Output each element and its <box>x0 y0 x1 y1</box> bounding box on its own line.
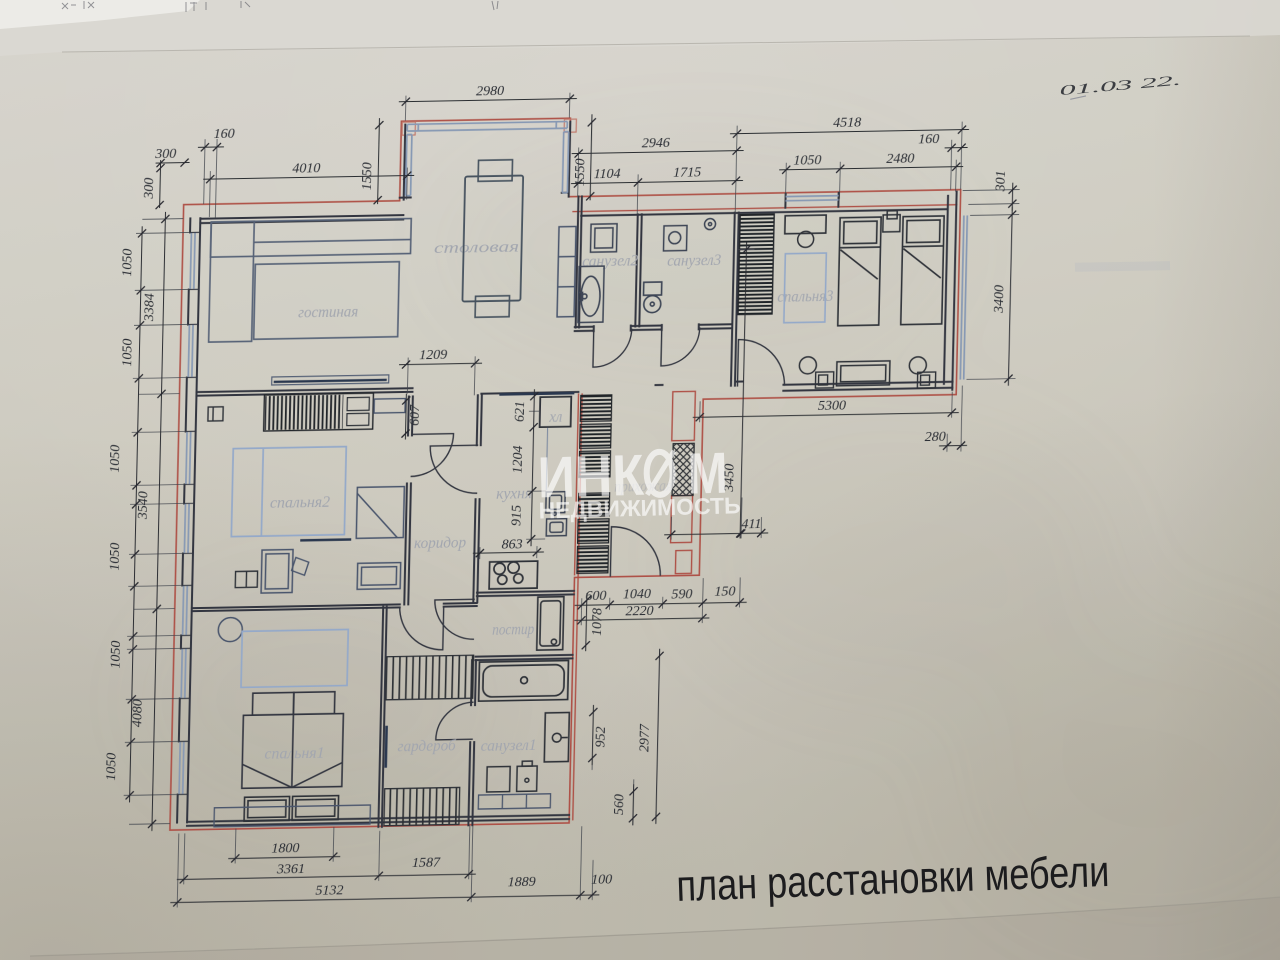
svg-text:1050: 1050 <box>104 753 120 781</box>
svg-text:гостиная: гостиная <box>298 303 358 321</box>
svg-text:1889: 1889 <box>507 875 535 891</box>
svg-text:3540: 3540 <box>136 491 152 520</box>
svg-text:1078: 1078 <box>590 608 606 636</box>
svg-text:2980: 2980 <box>476 84 504 100</box>
svg-text:2977: 2977 <box>637 723 653 752</box>
svg-text:4010: 4010 <box>292 161 320 177</box>
svg-text:621: 621 <box>513 401 528 422</box>
svg-text:1050: 1050 <box>120 248 136 276</box>
svg-text:2946: 2946 <box>642 136 670 152</box>
svg-text:863: 863 <box>501 537 522 552</box>
svg-text:1550: 1550 <box>573 158 589 186</box>
svg-text:1587: 1587 <box>412 856 441 872</box>
svg-text:спальня2: спальня2 <box>270 494 330 512</box>
svg-text:607: 607 <box>408 404 423 426</box>
svg-text:1050: 1050 <box>108 445 124 473</box>
svg-text:160: 160 <box>918 132 939 147</box>
svg-text:600: 600 <box>585 589 606 604</box>
svg-text:952: 952 <box>594 726 609 747</box>
svg-text:3400: 3400 <box>992 285 1008 314</box>
svg-text:150: 150 <box>714 585 735 600</box>
svg-text:5300: 5300 <box>818 399 846 415</box>
svg-text:столовая: столовая <box>434 239 519 258</box>
svg-text:411: 411 <box>741 517 761 532</box>
svg-text:НЕДВИЖИМОСТЬ: НЕДВИЖИМОСТЬ <box>538 492 741 523</box>
svg-text:3384: 3384 <box>142 293 158 322</box>
svg-text:301: 301 <box>994 170 1009 192</box>
svg-text:спальня1: спальня1 <box>264 745 324 763</box>
svg-text:2220: 2220 <box>625 604 653 620</box>
svg-text:1209: 1209 <box>419 348 447 364</box>
svg-text:1104: 1104 <box>594 167 621 182</box>
svg-text:постир: постир <box>492 621 534 639</box>
svg-text:хл: хл <box>548 409 562 426</box>
svg-text:5132: 5132 <box>315 883 343 899</box>
svg-text:4080: 4080 <box>130 699 146 727</box>
svg-text:100: 100 <box>591 873 612 888</box>
svg-text:590: 590 <box>671 587 692 602</box>
svg-text:1050: 1050 <box>108 543 124 571</box>
svg-text:1715: 1715 <box>673 165 701 181</box>
svg-text:915: 915 <box>509 505 524 526</box>
svg-text:300: 300 <box>142 178 157 200</box>
svg-text:3361: 3361 <box>276 862 305 878</box>
svg-text:1040: 1040 <box>623 587 651 603</box>
svg-text:санузел3: санузел3 <box>667 252 721 270</box>
svg-text:160: 160 <box>214 127 235 142</box>
svg-text:кухня: кухня <box>496 485 532 503</box>
svg-text:300: 300 <box>154 147 176 162</box>
svg-text:санузел1: санузел1 <box>480 737 536 755</box>
svg-text:560: 560 <box>612 794 627 815</box>
svg-text:280: 280 <box>925 430 946 445</box>
svg-text:1050: 1050 <box>793 153 821 169</box>
svg-text:гардероб: гардероб <box>397 737 456 755</box>
svg-text:коридор: коридор <box>414 534 466 552</box>
svg-text:санузел2: санузел2 <box>582 252 638 270</box>
svg-text:1050: 1050 <box>120 338 136 366</box>
svg-text:1204: 1204 <box>511 445 527 473</box>
svg-text:2480: 2480 <box>886 151 914 167</box>
svg-text:1800: 1800 <box>271 841 299 857</box>
svg-text:4518: 4518 <box>833 115 861 131</box>
svg-text:1550: 1550 <box>360 162 376 190</box>
svg-text:1050: 1050 <box>108 641 124 669</box>
